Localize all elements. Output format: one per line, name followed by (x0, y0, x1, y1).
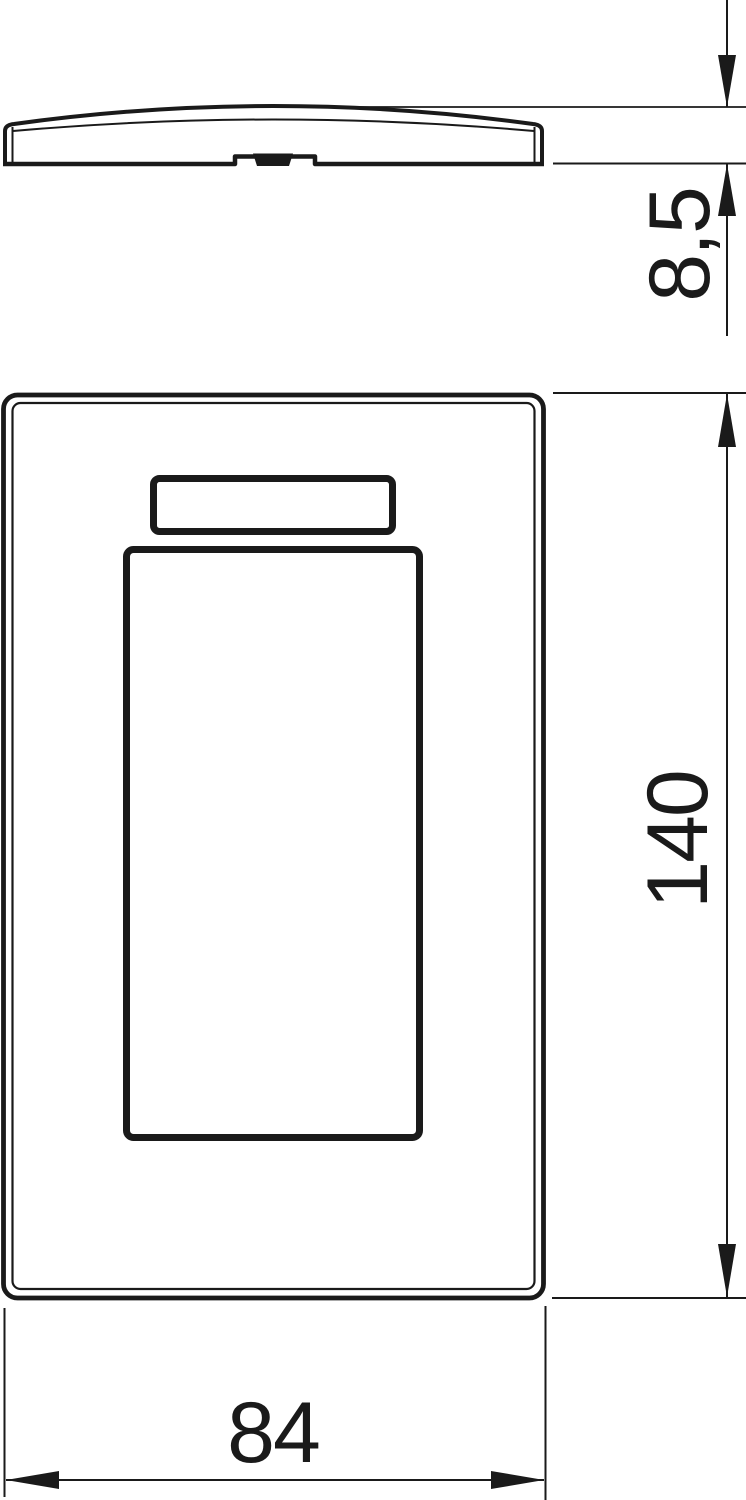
side-profile-view (3, 106, 544, 166)
dimension-value-front-height: 140 (630, 771, 726, 909)
dimension-profile-height: 8,5 (340, 0, 746, 336)
module-opening (127, 550, 420, 1138)
drawing-page: 8,5 140 84 (0, 0, 746, 1500)
dimension-value-front-width: 84 (227, 1385, 319, 1481)
dimension-front-width: 84 (5, 1306, 546, 1500)
arrowhead-down-icon (718, 1244, 736, 1297)
plate-inner-edge-line (13, 403, 535, 1289)
arrowhead-down-icon (718, 55, 736, 107)
profile-clip-tab (253, 154, 293, 167)
dimension-value-profile-height: 8,5 (632, 188, 728, 302)
labelling-field (154, 479, 393, 532)
front-view (4, 395, 544, 1298)
profile-inner-dome-edge (13, 120, 534, 132)
arrowhead-left-icon (6, 1471, 59, 1489)
dimension-front-height: 140 (552, 393, 746, 1298)
arrowhead-up-icon (718, 394, 736, 447)
arrowhead-right-icon (491, 1471, 544, 1489)
technical-drawing: 8,5 140 84 (0, 0, 746, 1500)
